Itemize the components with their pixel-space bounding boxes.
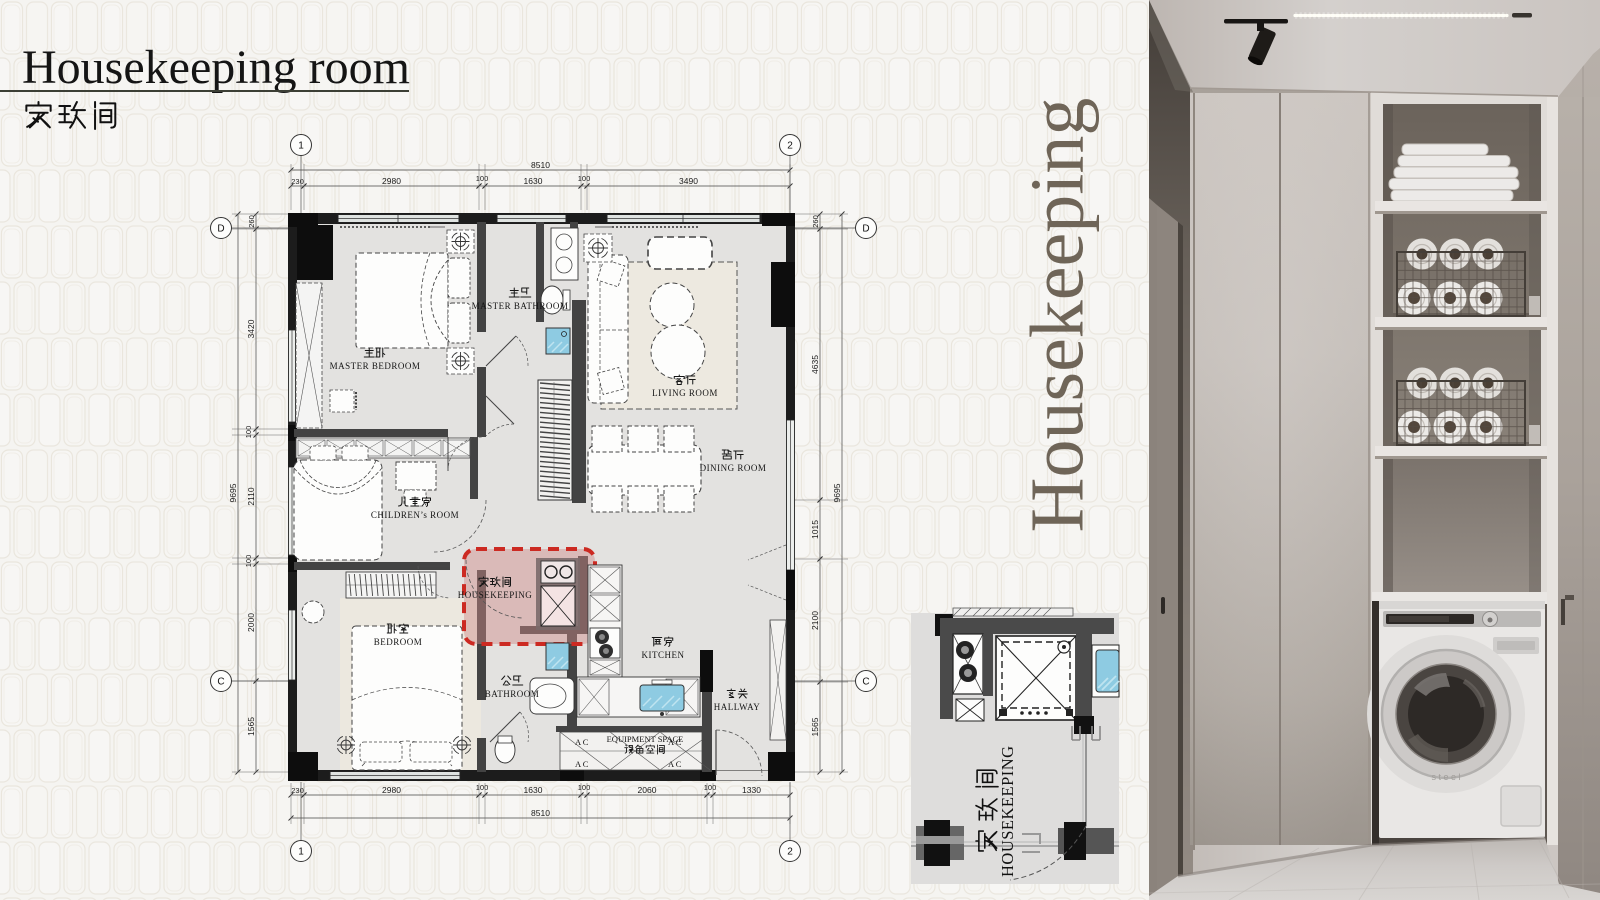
svg-text:9695: 9695 <box>228 483 238 502</box>
svg-text:100: 100 <box>578 174 591 183</box>
svg-text:2100: 2100 <box>810 611 820 630</box>
svg-text:MASTER BEDROOM: MASTER BEDROOM <box>330 361 421 371</box>
svg-text:1630: 1630 <box>524 785 543 795</box>
svg-text:3420: 3420 <box>246 319 256 338</box>
svg-text:2110: 2110 <box>246 487 256 506</box>
svg-text:1330: 1330 <box>742 785 761 795</box>
svg-text:230: 230 <box>291 177 304 186</box>
svg-text:1015: 1015 <box>810 520 820 539</box>
svg-text:HALLWAY: HALLWAY <box>714 702 761 712</box>
svg-text:100: 100 <box>704 783 717 792</box>
svg-text:2: 2 <box>787 141 793 152</box>
svg-text:C: C <box>217 677 224 688</box>
svg-text:MASTER BATHROOM: MASTER BATHROOM <box>472 301 569 311</box>
svg-text:s t e e l: s t e e l <box>1431 772 1460 782</box>
svg-text:D: D <box>217 224 224 235</box>
svg-text:EQUIPMENT SPACE: EQUIPMENT SPACE <box>607 734 684 744</box>
svg-text:2980: 2980 <box>382 785 401 795</box>
svg-text:HOUSEKEEPING: HOUSEKEEPING <box>998 745 1017 877</box>
svg-text:A C: A C <box>668 759 682 769</box>
svg-text:100: 100 <box>476 174 489 183</box>
svg-text:100: 100 <box>244 555 253 568</box>
svg-text:100: 100 <box>244 426 253 439</box>
svg-text:A C: A C <box>575 737 589 747</box>
svg-text:8510: 8510 <box>531 160 550 170</box>
svg-text:9695: 9695 <box>832 483 842 502</box>
svg-text:A C: A C <box>575 759 589 769</box>
svg-text:100: 100 <box>476 783 489 792</box>
svg-text:260: 260 <box>811 215 820 228</box>
svg-text:HOUSEKEEPING: HOUSEKEEPING <box>458 590 533 600</box>
svg-text:C: C <box>862 677 869 688</box>
svg-text:3490: 3490 <box>679 176 698 186</box>
svg-text:1565: 1565 <box>810 717 820 736</box>
svg-text:BATHROOM: BATHROOM <box>485 689 540 699</box>
svg-text:LIVING ROOM: LIVING ROOM <box>652 388 718 398</box>
svg-text:8510: 8510 <box>531 808 550 818</box>
svg-text:2980: 2980 <box>382 176 401 186</box>
svg-text:1: 1 <box>298 141 304 152</box>
svg-text:1: 1 <box>298 847 304 858</box>
svg-text:2060: 2060 <box>638 785 657 795</box>
svg-text:4635: 4635 <box>810 355 820 374</box>
svg-text:DINING ROOM: DINING ROOM <box>700 463 767 473</box>
svg-text:1565: 1565 <box>246 717 256 736</box>
svg-text:1630: 1630 <box>524 176 543 186</box>
svg-text:230: 230 <box>291 786 304 795</box>
svg-text:100: 100 <box>578 783 591 792</box>
svg-text:2000: 2000 <box>246 613 256 632</box>
svg-text:CHILDREN’s ROOM: CHILDREN’s ROOM <box>371 510 459 520</box>
svg-text:BEDROOM: BEDROOM <box>374 637 423 647</box>
svg-text:260: 260 <box>247 215 256 228</box>
svg-text:2: 2 <box>787 847 793 858</box>
svg-text:D: D <box>862 224 869 235</box>
svg-text:KITCHEN: KITCHEN <box>642 650 685 660</box>
